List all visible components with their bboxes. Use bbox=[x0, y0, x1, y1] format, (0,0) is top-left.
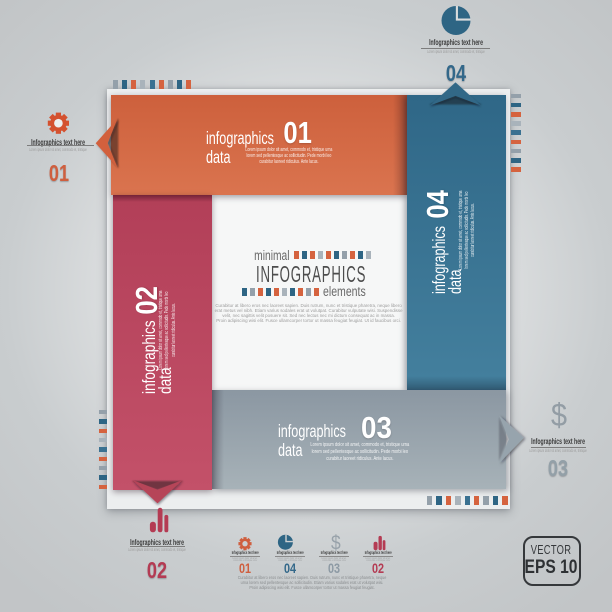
svg-text:$: $ bbox=[551, 398, 567, 434]
